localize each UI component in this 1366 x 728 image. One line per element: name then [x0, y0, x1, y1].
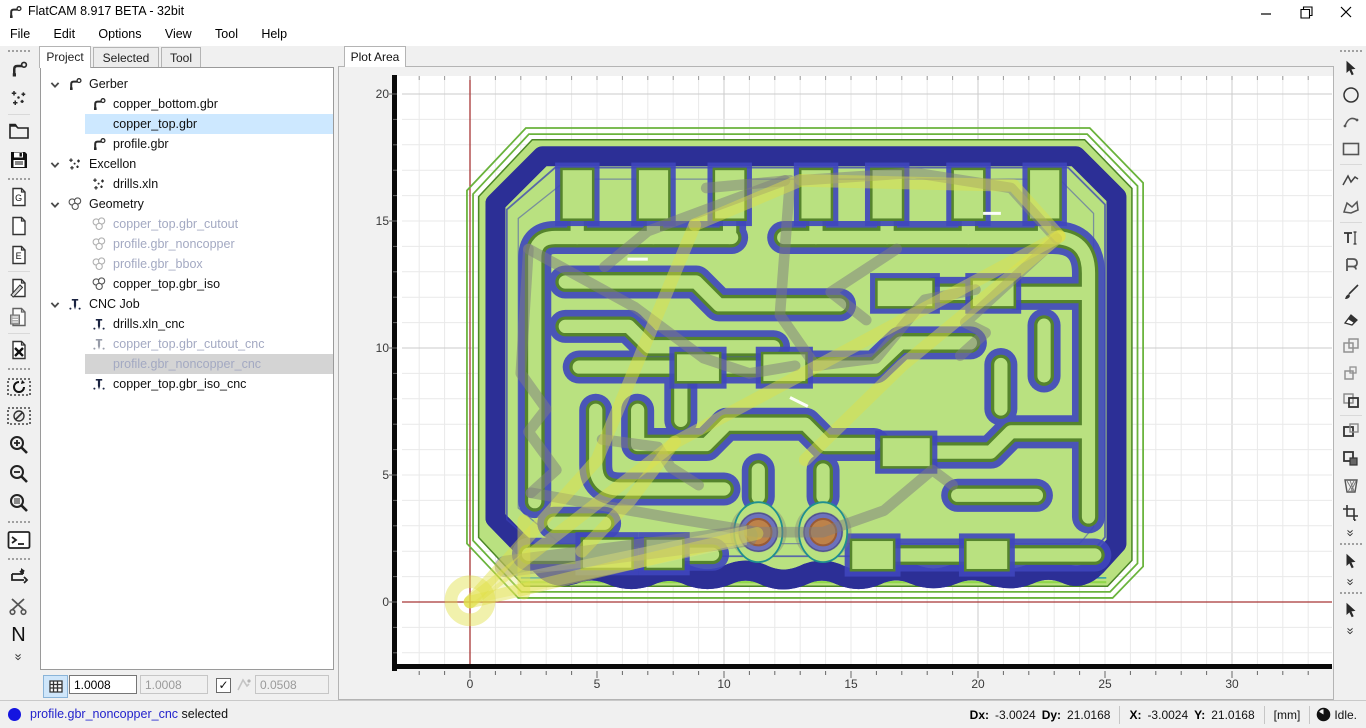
- tree-item[interactable]: drills.xln_cnc: [41, 314, 333, 334]
- text-icon: [1342, 230, 1360, 246]
- union-tool-button[interactable]: [1338, 387, 1364, 413]
- cncjob-icon: [67, 296, 83, 312]
- tree-item[interactable]: drills.xln: [41, 174, 333, 194]
- crop-icon: [1342, 504, 1360, 521]
- snap-max-input[interactable]: [255, 675, 329, 694]
- svg-text:10: 10: [717, 677, 731, 691]
- svg-text:10: 10: [376, 341, 390, 355]
- svg-text:15: 15: [844, 677, 858, 691]
- copy-small-icon: [1342, 365, 1360, 381]
- cursor-icon: [1342, 601, 1360, 619]
- zoom-in-icon: [8, 434, 30, 456]
- select-gerber-tool-button[interactable]: [1338, 548, 1364, 574]
- two-sided-tool-button[interactable]: [4, 563, 34, 591]
- rectangle-tool-button[interactable]: [1338, 136, 1364, 162]
- edit-script-button[interactable]: [4, 274, 34, 302]
- gerber-file-icon: G: [8, 186, 30, 208]
- geometry-icon: [91, 216, 107, 232]
- save-file-icon: [8, 306, 30, 328]
- panel-tabs: Project Selected Tool: [37, 46, 336, 67]
- flatcam-window: { "window": { "title": "FlatCAM 8.917 BE…: [0, 0, 1366, 728]
- zoom-out-button[interactable]: [4, 460, 34, 488]
- coordinates-status: Dx:-3.0024 Dy:21.0168 X:-3.0024 Y:21.016…: [967, 701, 1360, 728]
- polyline-tool-button[interactable]: [1338, 167, 1364, 193]
- scissors-icon: [8, 595, 30, 617]
- gerber-icon: [67, 76, 83, 92]
- arc-icon: [1342, 113, 1360, 131]
- zoom-in-button[interactable]: [4, 431, 34, 459]
- select-tool-button[interactable]: [1338, 55, 1364, 81]
- toolbar-overflow-button[interactable]: »: [1338, 624, 1364, 637]
- tree-group-gerber[interactable]: Gerber: [41, 74, 333, 94]
- svg-text:E: E: [15, 251, 21, 261]
- units-label: [mm]: [1274, 708, 1301, 722]
- toolbar-grip[interactable]: [7, 48, 31, 53]
- file-toolbar: G E: [0, 46, 37, 700]
- tree-item-disabled[interactable]: copper_top.gbr_cutout: [41, 214, 333, 234]
- toolbar-grip[interactable]: [1339, 541, 1363, 546]
- menu-tool[interactable]: Tool: [205, 24, 248, 46]
- app-state: Idle.: [1334, 708, 1357, 722]
- tree-item-disabled[interactable]: copper_top.gbr_cutout_cnc: [41, 334, 333, 354]
- brush-icon: [1342, 283, 1360, 301]
- save-project-button[interactable]: [4, 146, 34, 174]
- svg-text:G: G: [15, 193, 22, 203]
- excellon-icon: [9, 88, 29, 108]
- overflow-chevron-icon: »: [13, 653, 23, 660]
- eraser-tool-button[interactable]: [1338, 306, 1364, 332]
- svg-text:0: 0: [467, 677, 474, 691]
- edit-file-icon: [8, 277, 30, 299]
- overflow-chevron-icon: »: [1346, 529, 1356, 536]
- toolbar-overflow-button[interactable]: »: [1338, 526, 1364, 539]
- chevron-down-icon[interactable]: [49, 199, 61, 211]
- gerber-icon: [91, 96, 107, 112]
- open-excellon-button[interactable]: E: [4, 241, 34, 269]
- delete-shape-button[interactable]: [1338, 472, 1364, 498]
- toolbar-grip[interactable]: [1339, 48, 1363, 53]
- plot-canvas-wrap: 05101520253005101520: [338, 66, 1334, 700]
- status-bar: profile.gbr_noncopper_cnc selected Dx:-3…: [0, 700, 1366, 728]
- tree-item[interactable]: copper_top.gbr_iso_cnc: [41, 374, 333, 394]
- circle-tool-button[interactable]: [1338, 82, 1364, 108]
- toolbar-grip[interactable]: [7, 176, 31, 181]
- grid-x-input[interactable]: [69, 675, 137, 694]
- tree-group-excellon[interactable]: Excellon: [41, 154, 333, 174]
- restore-icon: [1300, 6, 1313, 19]
- plot-panel: Plot Area: [336, 46, 1336, 700]
- open-gerber-button[interactable]: G: [4, 183, 34, 211]
- cncjob-icon: [91, 376, 107, 392]
- grid-y-input[interactable]: [140, 675, 208, 694]
- excellon-icon: [91, 176, 107, 192]
- replot-button[interactable]: [4, 373, 34, 401]
- select-excellon-tool-button[interactable]: [1338, 597, 1364, 623]
- copy-icon: [1342, 338, 1360, 354]
- delete-file-icon: [8, 339, 30, 361]
- geometry-icon: [91, 256, 107, 272]
- terminal-icon: [7, 530, 31, 550]
- tab-tool[interactable]: Tool: [161, 47, 201, 67]
- cursor-icon: [1342, 59, 1360, 77]
- toolbar-grip[interactable]: [7, 556, 31, 561]
- window-title: FlatCAM 8.917 BETA - 32bit: [28, 4, 184, 18]
- tree-item-disabled[interactable]: profile.gbr_bbox: [41, 254, 333, 274]
- notebook-panel: Project Selected Tool Gerber copper_bott…: [37, 46, 336, 700]
- menu-edit[interactable]: Edit: [44, 24, 86, 46]
- corner-snap-icon: [235, 676, 253, 694]
- menu-file[interactable]: File: [0, 24, 40, 46]
- title-bar: FlatCAM 8.917 BETA - 32bit: [0, 0, 1366, 25]
- new-gerber-button[interactable]: [4, 55, 34, 83]
- zoom-fit-icon: [8, 492, 30, 514]
- cursor-icon: [1342, 552, 1360, 570]
- ncc-tool-button[interactable]: N: [4, 621, 34, 649]
- union-icon: [1342, 392, 1360, 408]
- subtract-icon: [1342, 450, 1360, 466]
- folder-icon: [8, 121, 30, 141]
- cncjob-icon: [91, 336, 107, 352]
- x-axis-spine: [392, 664, 1332, 669]
- text-tool-button[interactable]: [1338, 225, 1364, 251]
- menu-options[interactable]: Options: [88, 24, 151, 46]
- delete-object-button[interactable]: [4, 336, 34, 364]
- toolbar-grip[interactable]: [7, 366, 31, 371]
- arc-tool-button[interactable]: [1338, 109, 1364, 135]
- transform-tool-button[interactable]: [1338, 499, 1364, 525]
- menu-view[interactable]: View: [155, 24, 202, 46]
- svg-text:30: 30: [1225, 677, 1239, 691]
- tree-item[interactable]: copper_top.gbr_iso: [41, 274, 333, 294]
- x-value: -3.0024: [1147, 708, 1188, 722]
- replot-icon: [7, 378, 31, 396]
- command-line-button[interactable]: [4, 526, 34, 554]
- clear-plot-icon: [7, 407, 31, 425]
- circle-icon: [1342, 86, 1360, 104]
- pcb-board: [451, 128, 1143, 620]
- new-excellon-button[interactable]: [4, 84, 34, 112]
- zoom-out-icon: [8, 463, 30, 485]
- copy-objects-button[interactable]: [1338, 333, 1364, 359]
- overflow-chevron-icon: »: [1346, 578, 1356, 585]
- chevron-down-icon[interactable]: [49, 79, 61, 91]
- selection-status: profile.gbr_noncopper_cnc selected: [30, 707, 228, 721]
- chevron-down-icon[interactable]: [49, 159, 61, 171]
- svg-text:20: 20: [971, 677, 985, 691]
- polyline-icon: [1342, 173, 1360, 187]
- paint-tool-button[interactable]: [1338, 279, 1364, 305]
- app-icon: [7, 4, 23, 20]
- chevron-down-icon[interactable]: [49, 299, 61, 311]
- polygon-icon: [1342, 200, 1360, 215]
- dy-value: 21.0168: [1067, 708, 1110, 722]
- tree-item-selected-inactive[interactable]: profile.gbr_noncopper_cnc: [41, 354, 333, 374]
- blank-file-icon: [8, 215, 30, 237]
- plot-tabs: Plot Area: [336, 46, 1336, 66]
- dx-value: -3.0024: [995, 708, 1036, 722]
- two-sided-icon: [8, 566, 30, 588]
- gerber-icon: [91, 136, 107, 152]
- plot-canvas[interactable]: 05101520253005101520: [339, 67, 1333, 699]
- floppy-icon: [9, 150, 29, 170]
- toolbar-grip[interactable]: [7, 519, 31, 524]
- svg-text:15: 15: [376, 214, 390, 228]
- buffer-icon: [1343, 257, 1359, 273]
- excellon-file-icon: E: [8, 244, 30, 266]
- tree-item[interactable]: copper_bottom.gbr: [41, 94, 333, 114]
- subtract-tool-button[interactable]: [1338, 445, 1364, 471]
- selection-indicator-icon: [8, 708, 21, 721]
- tree-group-cncjob[interactable]: CNC Job: [41, 294, 333, 314]
- cutout-tool-button[interactable]: [4, 592, 34, 620]
- tab-selected[interactable]: Selected: [93, 47, 159, 67]
- menu-bar: File Edit Options View Tool Help: [0, 24, 1366, 46]
- tree-group-geometry[interactable]: Geometry: [41, 194, 333, 214]
- grid-icon: [49, 680, 63, 693]
- overflow-chevron-icon: »: [1346, 627, 1356, 634]
- editor-toolbar: » » »: [1336, 46, 1366, 700]
- toolbar-grip[interactable]: [1339, 590, 1363, 595]
- close-button[interactable]: [1326, 0, 1366, 24]
- minimize-icon: [1260, 6, 1272, 18]
- cncjob-icon: [91, 316, 107, 332]
- svg-text:5: 5: [382, 468, 389, 482]
- close-icon: [1340, 6, 1352, 18]
- svg-text:20: 20: [376, 87, 390, 101]
- new-file-button[interactable]: [4, 212, 34, 240]
- buffer-tool-button[interactable]: [1338, 252, 1364, 278]
- tree-item-disabled[interactable]: profile.gbr_noncopper: [41, 234, 333, 254]
- svg-text:5: 5: [594, 677, 601, 691]
- minimize-button[interactable]: [1246, 0, 1286, 24]
- grid-snap-toggle[interactable]: [43, 675, 68, 698]
- menu-help[interactable]: Help: [251, 24, 297, 46]
- intersection-tool-button[interactable]: [1338, 418, 1364, 444]
- svg-text:25: 25: [1098, 677, 1112, 691]
- copy-geometry-button[interactable]: [1338, 360, 1364, 386]
- axis-snap-checkbox[interactable]: ✓: [216, 678, 231, 693]
- clear-plot-button[interactable]: [4, 402, 34, 430]
- intersection-icon: [1342, 423, 1360, 439]
- open-project-button[interactable]: [4, 117, 34, 145]
- tab-plot-area[interactable]: Plot Area: [344, 46, 406, 67]
- toolbar-overflow-button[interactable]: »: [4, 650, 34, 664]
- ncc-icon: N: [11, 624, 25, 647]
- tree-item-selected[interactable]: copper_top.gbr: [41, 114, 333, 134]
- rectangle-icon: [1342, 142, 1360, 156]
- geometry-icon: [91, 276, 107, 292]
- excellon-icon: [67, 156, 83, 172]
- restore-button[interactable]: [1286, 0, 1326, 24]
- y-value: 21.0168: [1211, 708, 1254, 722]
- tab-project[interactable]: Project: [39, 46, 91, 68]
- toolbar-overflow-button[interactable]: »: [1338, 575, 1364, 588]
- save-object-button[interactable]: [4, 303, 34, 331]
- zoom-fit-button[interactable]: [4, 489, 34, 517]
- eraser-icon: [1342, 311, 1360, 327]
- grid-controls: ✓: [37, 674, 336, 700]
- polygon-tool-button[interactable]: [1338, 194, 1364, 220]
- trash-icon: [1342, 477, 1360, 494]
- project-tree: Gerber copper_bottom.gbr copper_top.gbr …: [40, 67, 334, 670]
- gerber-icon: [9, 59, 29, 79]
- activity-icon: [1316, 707, 1331, 722]
- svg-text:0: 0: [382, 595, 389, 609]
- geometry-icon: [67, 196, 83, 212]
- tree-item[interactable]: profile.gbr: [41, 134, 333, 154]
- geometry-icon: [91, 236, 107, 252]
